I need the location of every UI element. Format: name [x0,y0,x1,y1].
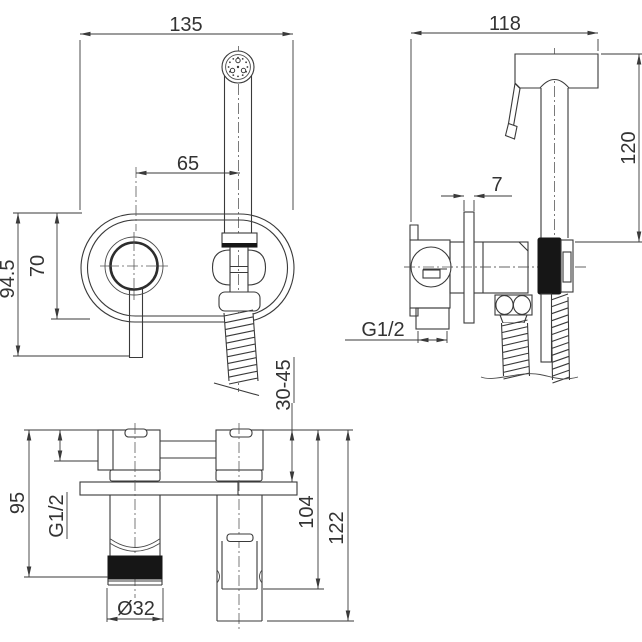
trigger-lever [509,84,521,127]
dim-label-bottom-height: 95 [7,492,29,514]
shower-hose [214,310,259,396]
knurled-band [108,556,162,579]
dim-front-width: 135 [80,14,293,210]
dim-depth-range: 30-45 [273,357,295,482]
dim-plate-thickness: 7 [441,174,512,211]
sprayer-handle [225,70,252,233]
hose-nut [219,292,260,311]
dim-label-bottom-thread: G1/2 [46,494,68,537]
inlet-pipe [416,308,449,329]
dim-label-sprayer-diameter: Ø32 [117,598,155,620]
dim-front-height: 94.5 [0,213,130,356]
drawing-canvas: 135 65 94.5 70 30-45 [0,0,642,642]
sprayer-head [222,51,254,83]
wall-plate-edge [464,212,474,323]
technical-drawing-page: { "drawing": { "background": "#ffffff", … [0,0,642,642]
centerlines [100,46,239,392]
side-view: 118 120 7 G1/2 [345,13,642,383]
dim-bottom-projections: 104 122 [263,430,354,621]
mixer-knob [105,237,163,295]
dim-side-width: 118 [411,13,598,222]
dim-label-side-thread: G1/2 [361,319,404,341]
dim-label-side-height: 120 [618,131,640,164]
connecting-bar [160,441,216,458]
dim-side-thread: G1/2 [345,319,447,343]
knob-column [217,495,262,621]
hose-cut-line [214,383,259,396]
dim-label-side-width: 118 [489,13,521,35]
dim-sprayer-diameter: Ø32 [107,588,163,622]
front-view: 135 65 94.5 70 30-45 [0,14,295,482]
valve-body [450,242,528,293]
fixing-tab [125,429,147,437]
dim-label-plate-thickness: 7 [491,174,502,196]
fixing-tab [230,429,252,437]
sprayer-holder [213,233,266,311]
handle-tail [541,294,552,362]
dim-label-front-plate-height: 70 [27,255,49,277]
dim-label-lever-projection: 122 [326,511,348,544]
hose-connection [481,294,578,383]
plate-edge [80,482,297,495]
sprayer-head-side [506,54,599,139]
dim-label-depth-range: 30-45 [273,359,295,410]
rough-in-bodies [98,429,263,481]
dim-label-knob-projection: 104 [296,495,318,528]
dim-label-front-width: 135 [169,14,202,36]
grip-and-holder [538,238,573,294]
dim-label-front-center-distance: 65 [177,153,199,175]
dim-label-front-height: 94.5 [0,260,19,299]
bottom-view: 95 G1/2 104 122 Ø32 [7,423,354,632]
